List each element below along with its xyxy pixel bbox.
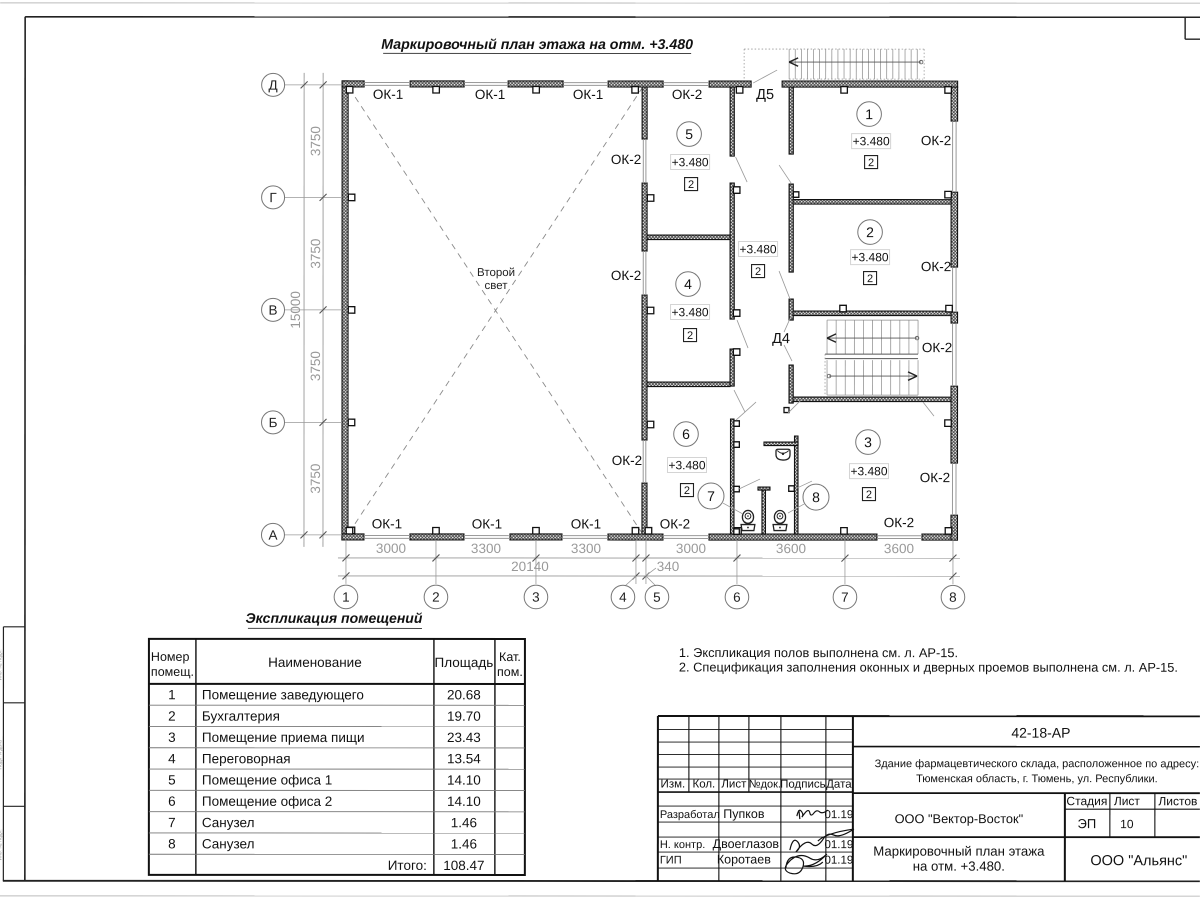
svg-text:помещ.: помещ.: [151, 665, 194, 679]
svg-text:+3.480: +3.480: [740, 242, 777, 256]
svg-text:Лист: Лист: [721, 779, 747, 791]
svg-text:ЭП: ЭП: [1078, 816, 1097, 831]
svg-text:ООО "Вектор-Восток": ООО "Вектор-Восток": [895, 811, 1024, 826]
svg-text:340: 340: [657, 559, 680, 574]
svg-text:Бухгалтерия: Бухгалтерия: [202, 709, 280, 724]
svg-text:Пупков: Пупков: [723, 807, 765, 821]
svg-text:2: 2: [866, 224, 874, 240]
svg-text:19.70: 19.70: [447, 709, 481, 724]
svg-text:5: 5: [168, 772, 176, 787]
svg-text:4: 4: [619, 590, 627, 605]
svg-text:5: 5: [653, 590, 661, 605]
svg-text:ОК-2: ОК-2: [922, 340, 952, 355]
svg-text:ОК-2: ОК-2: [660, 517, 690, 532]
svg-text:+3.480: +3.480: [672, 155, 709, 169]
svg-text:ГИП: ГИП: [660, 855, 682, 867]
svg-text:Двоеглазов: Двоеглазов: [713, 837, 780, 851]
svg-text:20140: 20140: [511, 559, 549, 574]
svg-text:Разработал: Разработал: [660, 809, 720, 821]
svg-text:на отм. +3.480.: на отм. +3.480.: [913, 859, 1005, 874]
svg-text:Санузел: Санузел: [202, 836, 255, 851]
svg-text:Номер: Номер: [151, 650, 190, 664]
svg-text:ОК-2: ОК-2: [672, 87, 702, 102]
svg-text:Д: Д: [269, 78, 278, 93]
svg-text:Тюменская область, г. Тюмень,: Тюменская область, г. Тюмень, ул. Респуб…: [916, 773, 1158, 785]
svg-text:14.10: 14.10: [447, 773, 481, 788]
svg-text:ОК-1: ОК-1: [475, 87, 505, 102]
svg-text:№док.: №док.: [749, 779, 781, 791]
svg-text:Помещение офиса 1: Помещение офиса 1: [202, 773, 332, 788]
svg-text:Подпись: Подпись: [780, 779, 826, 791]
svg-text:7: 7: [168, 815, 176, 830]
svg-text:Второй: Второй: [477, 267, 515, 279]
svg-text:Б: Б: [269, 415, 278, 430]
svg-text:Переговорная: Переговорная: [202, 751, 291, 766]
svg-text:2: 2: [868, 157, 874, 169]
svg-text:Экспликация помещений: Экспликация помещений: [246, 610, 423, 626]
svg-text:Санузел: Санузел: [202, 815, 255, 830]
svg-text:Подп. и дата: Подп. и дата: [0, 740, 3, 770]
svg-text:8: 8: [812, 489, 820, 505]
svg-text:Итого:: Итого:: [388, 858, 427, 873]
svg-text:В: В: [269, 303, 278, 318]
svg-text:6: 6: [682, 426, 690, 442]
svg-text:ОК-1: ОК-1: [573, 87, 603, 102]
svg-text:Г: Г: [269, 190, 277, 205]
svg-text:свет: свет: [485, 280, 509, 292]
svg-text:+3.480: +3.480: [668, 458, 705, 472]
svg-text:Площадь: Площадь: [435, 655, 494, 670]
svg-text:108.47: 108.47: [443, 858, 484, 873]
svg-text:5: 5: [685, 126, 693, 142]
svg-text:2: 2: [866, 489, 872, 501]
svg-text:8: 8: [949, 590, 957, 605]
svg-text:Н. контр.: Н. контр.: [660, 839, 705, 851]
svg-text:2: 2: [168, 709, 176, 724]
svg-text:Инв. № подл.: Инв. № подл.: [0, 829, 3, 860]
svg-text:6: 6: [733, 590, 741, 605]
svg-text:Коротаев: Коротаев: [717, 853, 771, 867]
svg-text:2: 2: [432, 590, 440, 605]
svg-text:+3.480: +3.480: [852, 250, 889, 264]
svg-text:Дата: Дата: [826, 779, 852, 791]
svg-text:Помещение приема пищи: Помещение приема пищи: [202, 730, 365, 745]
svg-text:Здание фармацевтического склад: Здание фармацевтического склада, располо…: [875, 758, 1200, 770]
svg-text:20.68: 20.68: [447, 687, 481, 702]
svg-text:Помещение заведующего: Помещение заведующего: [202, 687, 364, 702]
svg-text:23.43: 23.43: [447, 730, 481, 745]
svg-text:ОК-1: ОК-1: [571, 516, 601, 531]
svg-text:01.19: 01.19: [824, 855, 853, 867]
svg-text:Инв. № подл.: Инв. № подл.: [0, 649, 3, 680]
svg-text:ОК-2: ОК-2: [920, 470, 950, 485]
svg-text:А: А: [268, 528, 277, 543]
svg-text:3750: 3750: [308, 351, 323, 381]
svg-text:4: 4: [684, 276, 692, 292]
svg-text:13.54: 13.54: [447, 751, 481, 766]
svg-text:ОК-2: ОК-2: [611, 268, 641, 283]
svg-text:2. Спецификация заполнения око: 2. Спецификация заполнения оконных и две…: [679, 660, 1178, 675]
svg-text:ОК-2: ОК-2: [611, 152, 641, 167]
svg-text:Д5: Д5: [756, 87, 774, 103]
svg-text:2: 2: [684, 485, 690, 497]
svg-text:+3.480: +3.480: [850, 464, 887, 478]
svg-text:3750: 3750: [308, 239, 323, 269]
svg-text:7: 7: [841, 590, 849, 605]
svg-text:2: 2: [755, 266, 761, 278]
svg-text:Изм.: Изм.: [661, 779, 686, 791]
svg-text:ОК-2: ОК-2: [884, 515, 914, 530]
svg-text:2: 2: [688, 179, 694, 191]
svg-text:+3.480: +3.480: [853, 134, 890, 148]
svg-text:ОК-1: ОК-1: [472, 516, 502, 531]
svg-text:Маркировочный план этажа на от: Маркировочный план этажа на отм. +3.480: [381, 37, 693, 53]
svg-text:1.46: 1.46: [451, 815, 477, 830]
svg-text:+3.480: +3.480: [672, 305, 709, 319]
svg-text:1: 1: [168, 687, 176, 702]
svg-text:Лист: Лист: [1114, 794, 1141, 808]
svg-text:1: 1: [865, 106, 873, 122]
svg-text:2: 2: [867, 273, 873, 285]
svg-text:1: 1: [342, 590, 350, 605]
svg-text:3300: 3300: [471, 541, 501, 556]
svg-text:1. Экспликация полов выполнена: 1. Экспликация полов выполнена см. л. АР…: [679, 645, 958, 660]
svg-text:3: 3: [864, 434, 872, 450]
svg-text:Маркировочный план этажа: Маркировочный план этажа: [873, 844, 1045, 859]
svg-text:ОК-1: ОК-1: [373, 87, 403, 102]
svg-text:3600: 3600: [776, 541, 806, 556]
svg-text:ОК-2: ОК-2: [921, 133, 951, 148]
svg-text:15000: 15000: [288, 291, 303, 329]
svg-text:Помещение офиса 2: Помещение офиса 2: [202, 794, 332, 809]
svg-text:2: 2: [687, 330, 693, 342]
svg-text:3: 3: [168, 730, 176, 745]
svg-text:01.19: 01.19: [824, 809, 853, 821]
svg-text:ОК-1: ОК-1: [372, 516, 402, 531]
svg-text:1.46: 1.46: [451, 836, 477, 851]
svg-text:ОК-2: ОК-2: [921, 259, 951, 274]
svg-text:3300: 3300: [571, 541, 601, 556]
svg-text:3: 3: [532, 590, 540, 605]
svg-text:10: 10: [1120, 817, 1134, 831]
svg-text:Кол.: Кол.: [693, 779, 716, 791]
svg-text:8: 8: [168, 836, 176, 851]
svg-text:4: 4: [168, 751, 176, 766]
svg-text:3600: 3600: [884, 541, 914, 556]
svg-text:Листов: Листов: [1158, 794, 1197, 808]
svg-text:01.19: 01.19: [824, 839, 853, 851]
svg-text:3750: 3750: [308, 464, 323, 494]
svg-text:Д4: Д4: [772, 331, 790, 347]
svg-text:пом.: пом.: [497, 665, 523, 679]
svg-text:Кат.: Кат.: [499, 650, 521, 664]
svg-text:ОК-2: ОК-2: [612, 453, 642, 468]
svg-text:Наименование: Наименование: [268, 655, 362, 670]
svg-text:3000: 3000: [376, 541, 406, 556]
svg-text:6: 6: [168, 794, 176, 809]
svg-text:3750: 3750: [308, 126, 323, 156]
svg-text:42-18-АР: 42-18-АР: [1011, 725, 1070, 741]
svg-text:ООО "Альянс": ООО "Альянс": [1090, 853, 1187, 869]
svg-text:3000: 3000: [676, 541, 706, 556]
svg-text:Стадия: Стадия: [1066, 794, 1107, 808]
svg-text:7: 7: [707, 488, 715, 504]
svg-text:14.10: 14.10: [447, 794, 481, 809]
